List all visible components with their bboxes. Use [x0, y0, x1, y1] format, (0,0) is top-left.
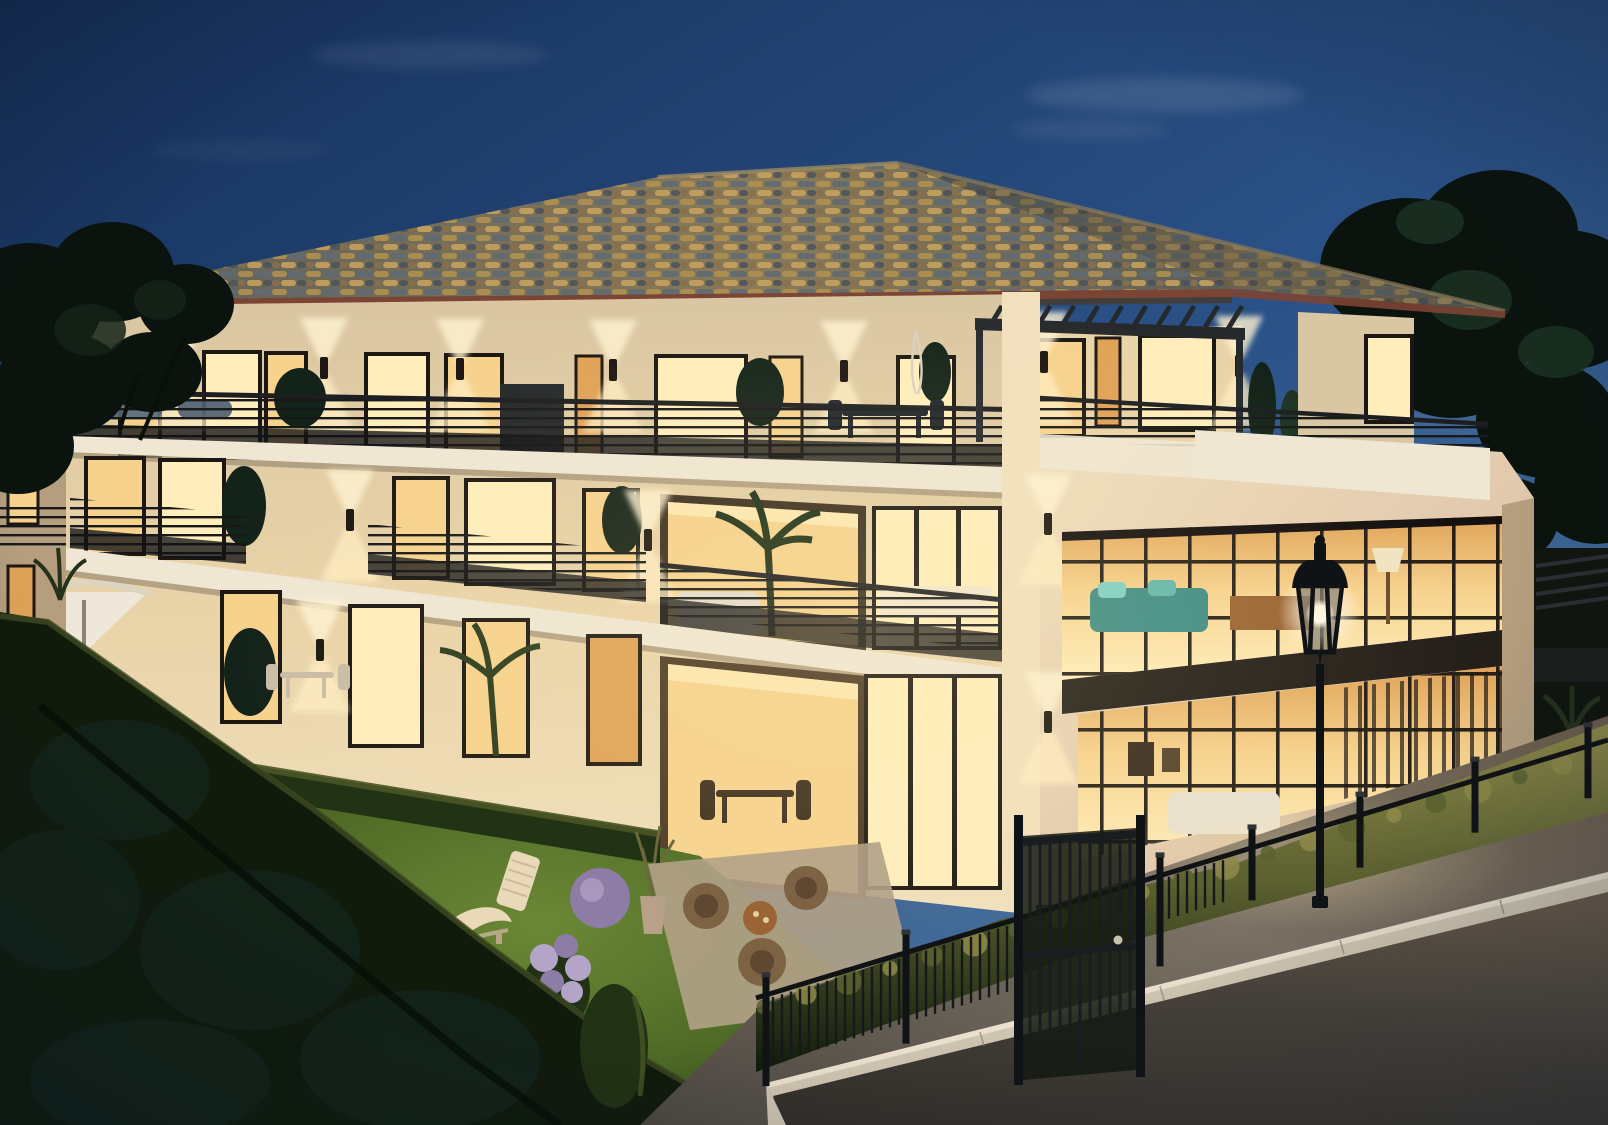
dusk-residence-scene	[0, 0, 1608, 1125]
vignette	[0, 0, 1608, 1125]
architectural-rendering	[0, 0, 1608, 1125]
